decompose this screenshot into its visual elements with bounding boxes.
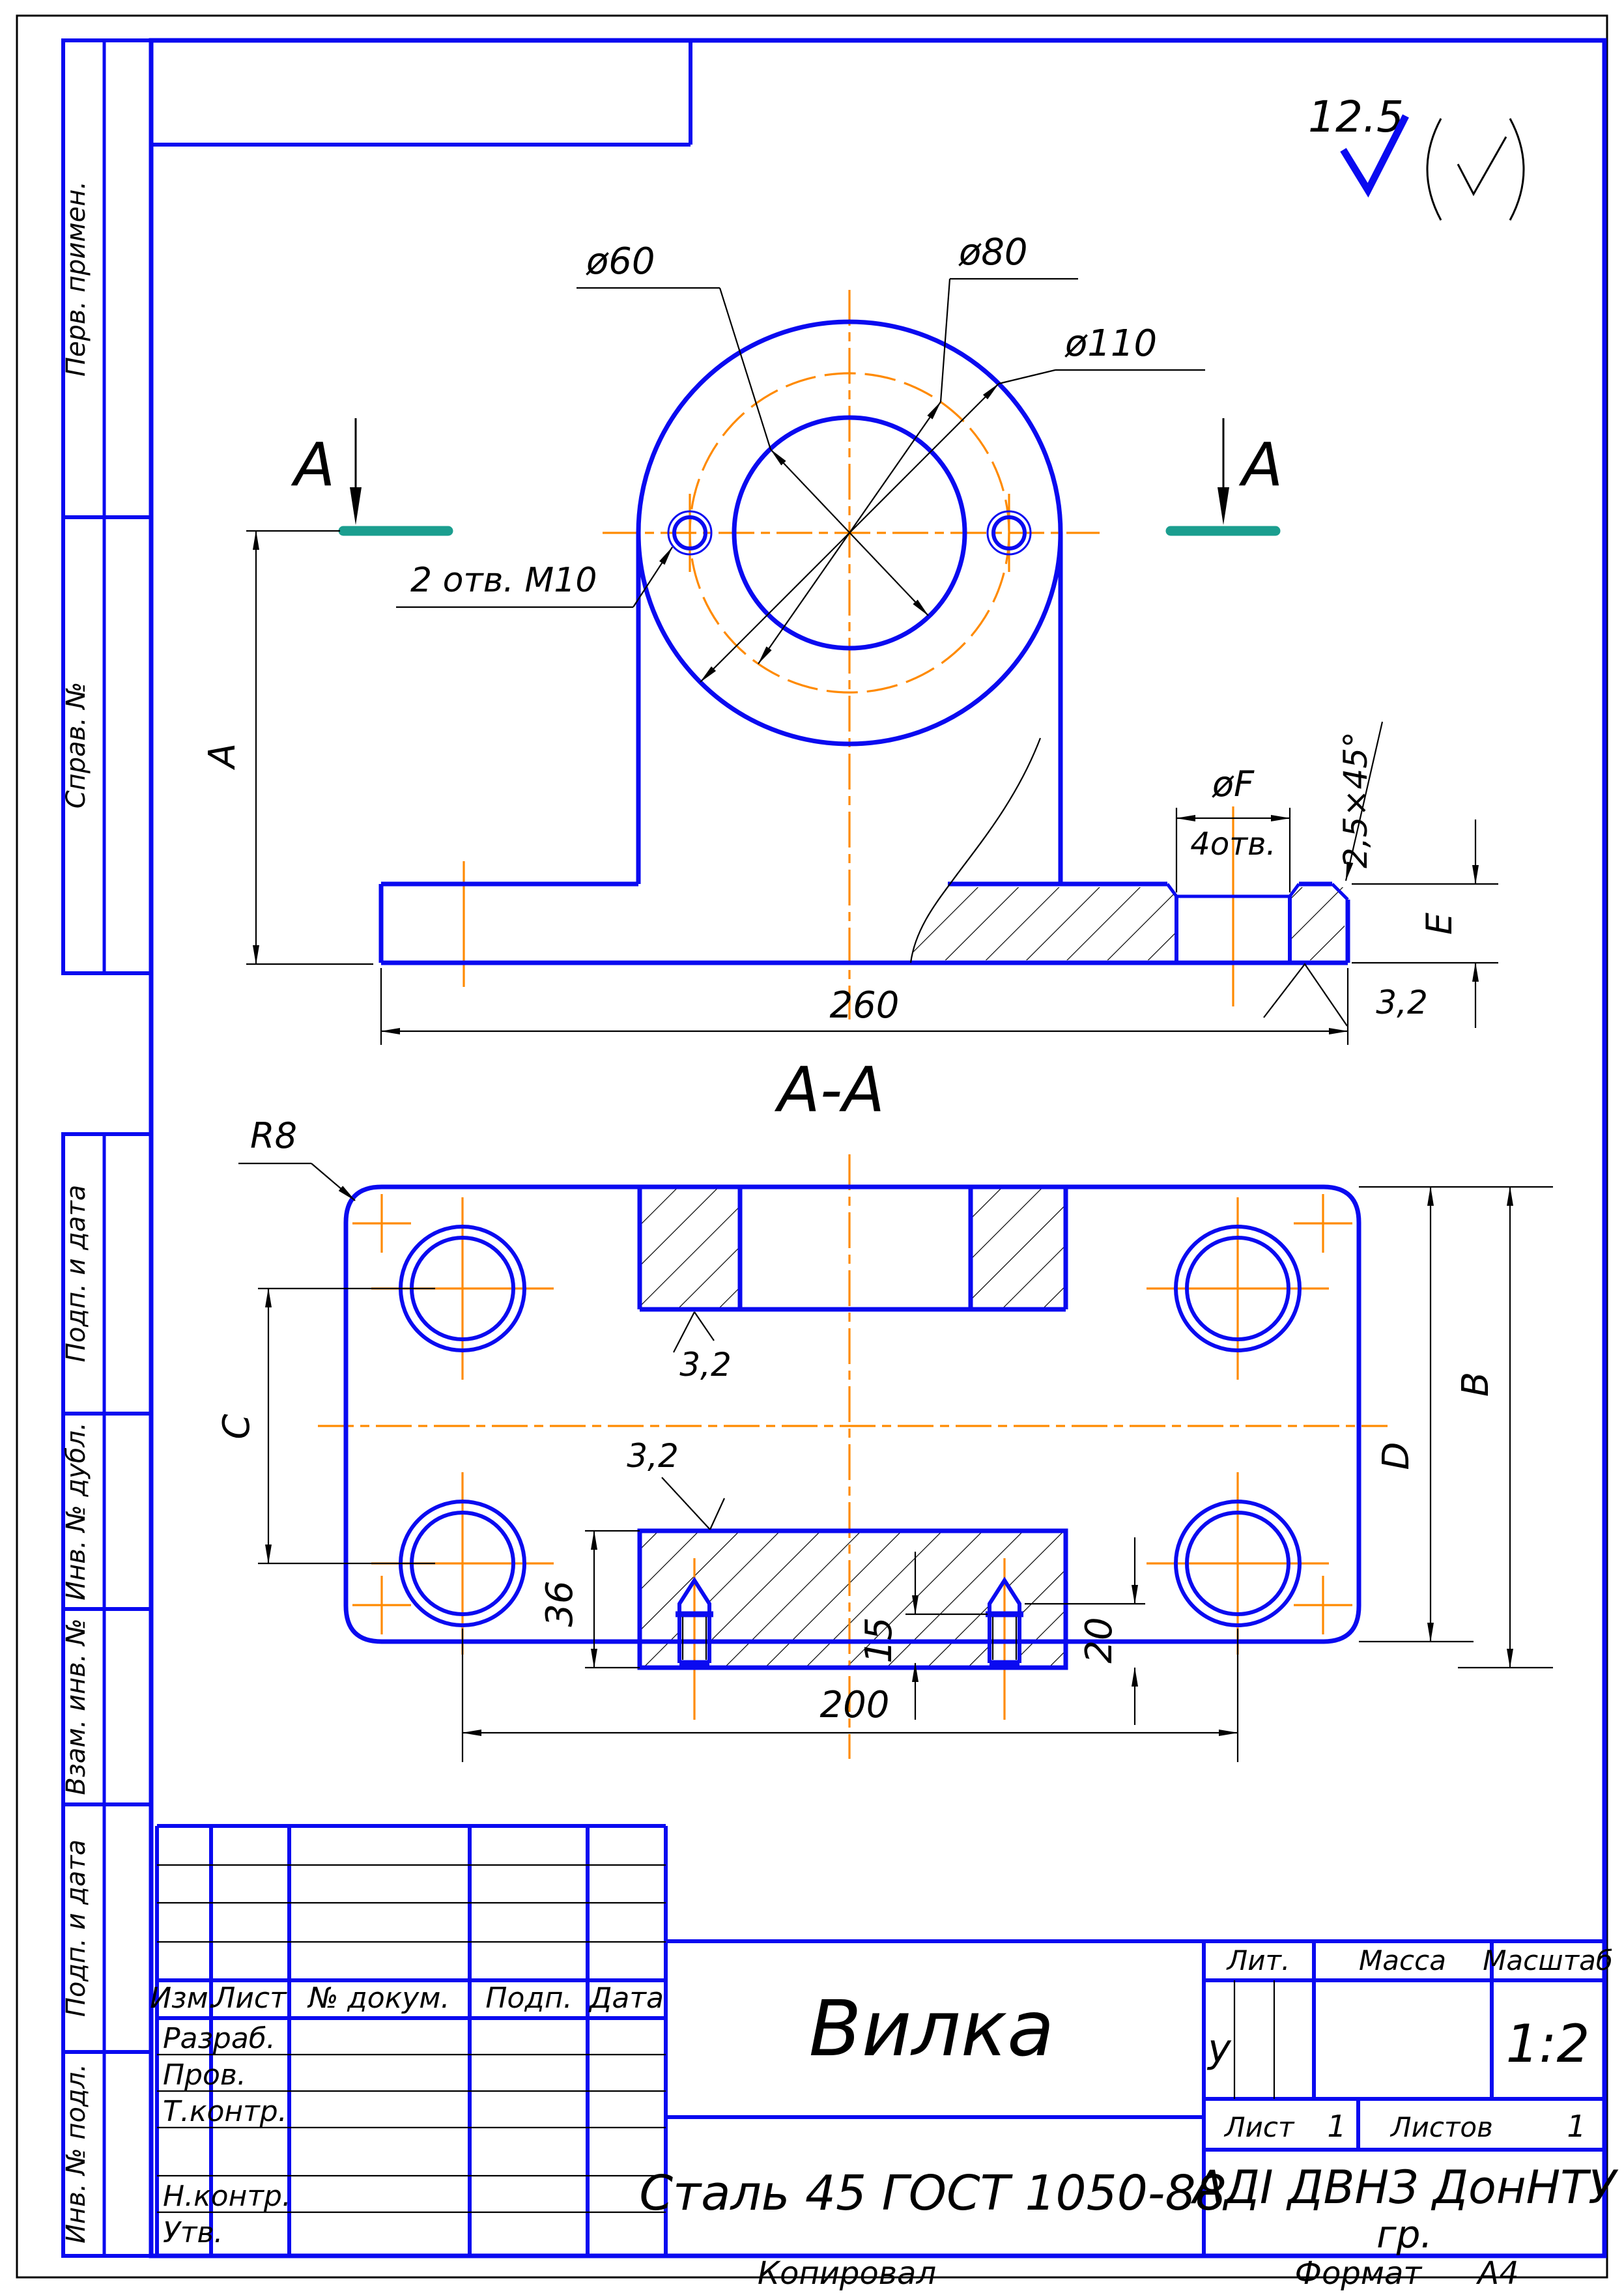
dim-dia60: ø60 [586,240,655,283]
section-roughness-top: 3,2 [679,1346,732,1384]
roughness-value: 12.5 [1308,92,1404,142]
sidebar-label-perv-primen: Перв. примен. [61,181,91,377]
sidebar-label-podp-data-2: Подп. и дата [61,1840,91,2017]
material: Сталь 45 ГОСТ 1050-88 [639,2165,1226,2221]
sidebar-label-sprav-no: Справ. № [61,682,91,809]
lit-label: Лит. [1226,1944,1290,1976]
sidebar-label-podp-data-1: Подп. и дата [61,1185,91,1362]
sidebar-label-inv-dubl: Инв. № дубл. [61,1422,91,1601]
sheets-value: 1 [1567,2109,1586,2144]
front-roughness: 3,2 [1376,984,1428,1021]
org-name: АДІ ДВНЗ ДонНТУ [1190,2161,1619,2214]
row-prov: Пров. [163,2058,246,2092]
scale-label: Масштаб [1483,1944,1613,1976]
dim-dia-f: øF [1212,763,1255,805]
sheet-label: Лист [1223,2111,1295,2143]
dim-36: 36 [539,1580,581,1627]
drawing-sheet: Перв. примен. Справ. № Подп. и дата Инв.… [0,0,1624,2293]
dim-d: D [1375,1442,1417,1470]
row-utv: Утв. [163,2216,223,2249]
section-letter-left: А [291,430,335,500]
dim-20: 20 [1078,1617,1120,1663]
row-tkontr: Т.контр. [163,2095,287,2128]
section-roughness-bottom: 3,2 [627,1437,679,1475]
note-2otv-m10: 2 отв. М10 [410,561,597,600]
dim-a: А [201,743,244,770]
sheet-value: 1 [1327,2109,1346,2144]
dim-e: E [1419,912,1460,935]
sidebar-label-inv-podl: Инв. № подл. [61,2064,91,2243]
dim-c: C [216,1414,258,1439]
part-name: Вилка [809,1984,1055,2073]
dim-r8: R8 [250,1115,297,1156]
col-podp: Подп. [485,1982,572,2015]
drawing-canvas: Перв. примен. Справ. № Подп. и дата Инв.… [0,0,1624,2293]
note-4otv: 4отв. [1190,826,1275,862]
dim-dia110: ø110 [1064,322,1157,365]
sidebar-label-vzam-inv: Взам. инв. № [61,1618,91,1795]
sheets-label: Листов [1389,2111,1493,2143]
col-izm: Изм. [150,1982,218,2015]
copied-label: Копировал [758,2255,936,2292]
dim-15: 15 [858,1617,900,1663]
dim-dia80: ø80 [958,231,1028,274]
row-nkontr: Н.контр. [163,2180,291,2213]
dim-260: 260 [830,984,900,1027]
col-list: Лист [212,1982,287,2015]
format-value: А4 [1475,2255,1518,2292]
org-group: гр. [1376,2212,1432,2257]
dim-b: B [1455,1372,1497,1397]
scale-value: 1:2 [1506,2014,1590,2074]
section-title: А-А [774,1055,885,1126]
col-data: Дата [588,1982,664,2015]
section-letter-right: А [1239,430,1283,500]
col-docnum: № докум. [307,1982,450,2015]
row-razrab: Разраб. [163,2022,276,2055]
dim-200: 200 [820,1684,890,1726]
lit-value: у [1206,2026,1232,2072]
dim-chamfer: 2,5×45° [1337,732,1375,868]
mass-label: Масса [1359,1944,1446,1976]
format-label: Формат [1295,2255,1423,2292]
